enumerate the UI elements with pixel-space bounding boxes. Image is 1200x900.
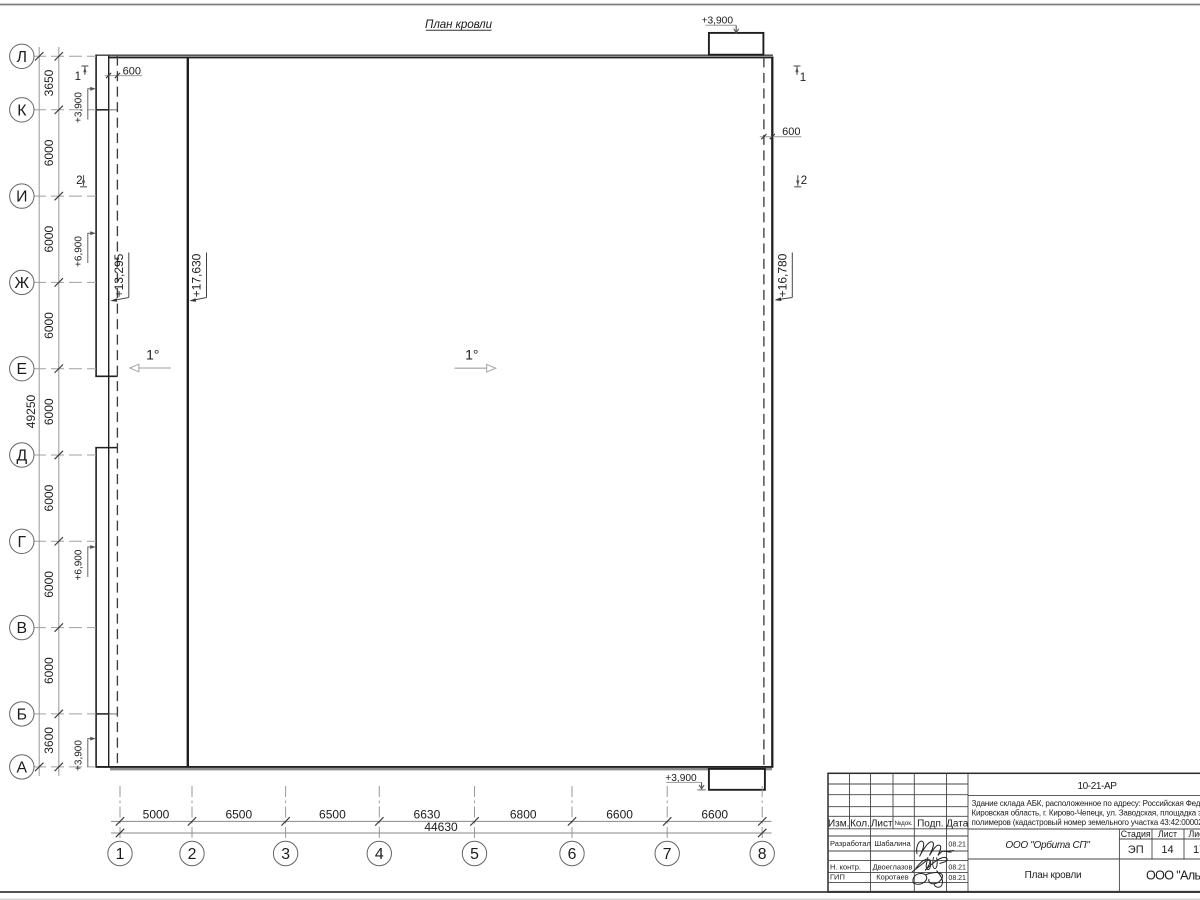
svg-text:6000: 6000 <box>42 657 56 684</box>
svg-text:2: 2 <box>76 175 82 187</box>
svg-text:А: А <box>17 759 28 776</box>
svg-text:17: 17 <box>1193 844 1200 856</box>
svg-text:Л: Л <box>17 49 27 66</box>
svg-text:И: И <box>16 189 27 206</box>
svg-text:6000: 6000 <box>42 398 56 425</box>
svg-text:5: 5 <box>470 846 479 863</box>
svg-text:Разработал: Разработал <box>830 839 871 848</box>
svg-text:ООО "Орбита СП": ООО "Орбита СП" <box>1005 839 1090 851</box>
svg-text:8: 8 <box>758 846 767 863</box>
svg-text:6000: 6000 <box>42 226 56 253</box>
svg-text:Г: Г <box>18 534 27 551</box>
svg-text:6000: 6000 <box>42 139 56 166</box>
svg-text:К: К <box>17 102 27 119</box>
svg-text:6000: 6000 <box>42 571 56 598</box>
svg-text:4: 4 <box>375 846 384 863</box>
svg-text:+13,295: +13,295 <box>112 253 126 297</box>
svg-text:Д: Д <box>16 448 27 465</box>
svg-text:3600: 3600 <box>42 727 56 754</box>
svg-text:Б: Б <box>17 706 27 723</box>
svg-text:6600: 6600 <box>701 808 728 822</box>
svg-text:+17,630: +17,630 <box>189 253 203 297</box>
svg-text:3: 3 <box>281 846 290 863</box>
svg-text:49250: 49250 <box>24 394 38 428</box>
svg-text:Стадия: Стадия <box>1121 829 1151 839</box>
svg-text:6600: 6600 <box>606 808 633 822</box>
svg-text:+6,900: +6,900 <box>74 549 85 580</box>
svg-text:ГИП: ГИП <box>830 873 845 882</box>
svg-text:Двоеглазов: Двоеглазов <box>873 862 913 871</box>
svg-text:полимеров (кадастровый номер з: полимеров (кадастровый номер земельного … <box>972 818 1200 827</box>
svg-text:1°: 1° <box>146 347 159 363</box>
svg-text:План кровли: План кровли <box>1025 870 1082 881</box>
svg-text:44630: 44630 <box>424 820 458 834</box>
svg-text:2: 2 <box>188 846 197 863</box>
svg-text:+3,900: +3,900 <box>702 15 734 26</box>
svg-text:7: 7 <box>663 846 672 863</box>
svg-text:+16,780: +16,780 <box>775 253 789 297</box>
svg-text:Подп.: Подп. <box>917 818 944 829</box>
svg-text:6800: 6800 <box>510 808 537 822</box>
svg-text:Листов: Листов <box>1189 829 1200 839</box>
svg-text:ЭП: ЭП <box>1128 844 1144 856</box>
svg-text:Лист: Лист <box>1158 829 1177 839</box>
svg-text:1°: 1° <box>465 347 478 363</box>
svg-text:+3,900: +3,900 <box>74 740 85 771</box>
svg-text:2: 2 <box>801 175 807 187</box>
svg-text:08.21: 08.21 <box>948 865 966 872</box>
svg-text:08.21: 08.21 <box>948 842 966 849</box>
svg-text:Здание склада АБК, расположенн: Здание склада АБК, расположенное по адре… <box>972 799 1200 808</box>
svg-text:14: 14 <box>1161 844 1173 856</box>
svg-text:Кол.: Кол. <box>850 818 870 829</box>
svg-text:Лист: Лист <box>871 818 893 829</box>
svg-text:ООО "Альянсэнерго": ООО "Альянсэнерго" <box>1146 869 1200 883</box>
svg-text:Н. контр.: Н. контр. <box>830 862 861 871</box>
svg-text:В: В <box>17 620 28 637</box>
svg-text:+6,900: +6,900 <box>74 236 85 267</box>
svg-text:Е: Е <box>17 361 28 378</box>
svg-text:3650: 3650 <box>42 69 56 96</box>
svg-text:6: 6 <box>568 846 577 863</box>
svg-text:08.21: 08.21 <box>948 875 966 882</box>
svg-text:6500: 6500 <box>225 808 252 822</box>
svg-text:Изм.: Изм. <box>828 818 849 829</box>
svg-text:Ж: Ж <box>15 275 30 292</box>
svg-text:1: 1 <box>75 71 81 83</box>
svg-text:6500: 6500 <box>319 808 346 822</box>
svg-text:1: 1 <box>116 846 125 863</box>
svg-text:Шабалина: Шабалина <box>874 839 911 848</box>
svg-text:+3,900: +3,900 <box>74 92 85 123</box>
svg-text:Кировская область, г. Кирово-Ч: Кировская область, г. Кирово-Чепецк, ул.… <box>972 808 1200 817</box>
svg-text:6000: 6000 <box>42 312 56 339</box>
svg-text:1: 1 <box>800 72 806 84</box>
svg-text:Коротаев: Коротаев <box>876 873 908 882</box>
svg-text:5000: 5000 <box>143 808 170 822</box>
svg-text:6000: 6000 <box>42 484 56 511</box>
svg-text:№док.: №док. <box>895 820 913 827</box>
svg-text:План кровли: План кровли <box>425 18 493 31</box>
svg-text:Дата: Дата <box>946 818 969 829</box>
svg-text:10-21-АР: 10-21-АР <box>1077 781 1117 792</box>
